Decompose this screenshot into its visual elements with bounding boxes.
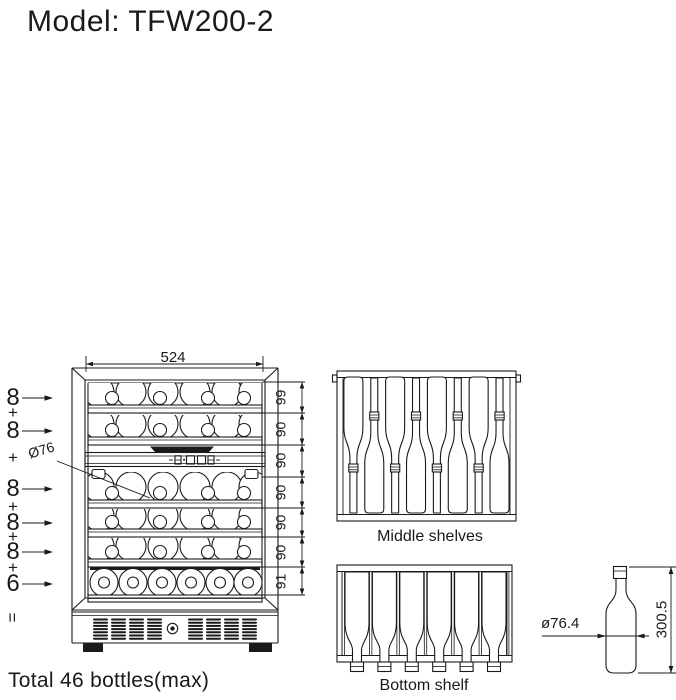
bottle-top-view xyxy=(427,377,446,513)
arrowhead xyxy=(300,589,305,596)
standing-bottle-inner-circle xyxy=(157,577,168,588)
arrowhead xyxy=(256,362,263,367)
bottle-bottom-circle xyxy=(212,377,242,407)
shelf-height-dim: 90 xyxy=(274,413,289,447)
bottle-top-view xyxy=(386,377,405,513)
arrowhead xyxy=(86,362,93,367)
vent-slat xyxy=(93,628,108,630)
bottle-neck-circle xyxy=(202,424,215,437)
bottle-neck-circle xyxy=(154,546,167,559)
cabinet-top-bevel xyxy=(265,368,278,380)
arrowhead xyxy=(669,567,674,574)
vent-slat xyxy=(224,628,239,630)
bottle-neck-circle xyxy=(106,392,119,405)
arrowhead xyxy=(300,567,305,574)
bottle-top-view xyxy=(490,378,509,513)
vent-slat xyxy=(93,631,108,633)
bottle-neck-circle xyxy=(106,546,119,559)
bottle-top-view xyxy=(344,377,363,513)
bottle-neck-circle xyxy=(202,392,215,405)
shelf-height-dim: 91 xyxy=(274,565,289,599)
bottle-bottom-circle xyxy=(212,472,242,502)
bottle-collar xyxy=(411,412,420,420)
vent-slat xyxy=(147,619,162,621)
vent-slat xyxy=(224,625,239,627)
vent-slat xyxy=(206,638,221,640)
standing-bottle-inner-circle xyxy=(99,577,110,588)
door-bottom-bevel xyxy=(265,598,278,610)
vent-slat xyxy=(224,619,239,621)
vent-slat xyxy=(206,619,221,621)
middle-shelf-frame xyxy=(337,371,516,521)
bottle-collar xyxy=(432,464,441,472)
count-arrowhead xyxy=(45,395,54,401)
vent-slat xyxy=(188,625,203,627)
bottom-row-bottles xyxy=(90,569,262,597)
bottle-neck-circle xyxy=(154,424,167,437)
bottle-silhouette xyxy=(400,572,424,662)
bottom-shelf-caption: Bottom shelf xyxy=(350,678,498,694)
shelf-row-bottles xyxy=(84,501,269,531)
count-arrowhead xyxy=(45,520,54,526)
vent-slat xyxy=(188,622,203,624)
bottle-neck-circle xyxy=(238,516,251,529)
fridge-foot xyxy=(83,643,103,652)
width-dimension-label: 524 xyxy=(140,350,206,365)
bottle-collar xyxy=(370,412,379,420)
vent-slat xyxy=(111,619,126,621)
vent-slat xyxy=(93,635,108,637)
shelf-height-dim: 99 xyxy=(274,381,289,415)
bottle-bottom-circle xyxy=(212,531,242,561)
bottle-bottom-circle xyxy=(116,501,146,531)
shelf-row-bottles xyxy=(84,377,269,407)
vent-slat xyxy=(111,638,126,640)
bottle-silhouette xyxy=(372,572,396,662)
bottle-neck-circle xyxy=(154,487,167,500)
bottle-bottom-circle xyxy=(116,531,146,561)
shelf-row-bottles xyxy=(84,531,269,561)
arrowhead xyxy=(300,531,305,538)
bottle-top-view xyxy=(469,377,488,513)
bottle-collar xyxy=(474,464,483,472)
middle-shelves-caption: Middle shelves xyxy=(355,529,505,545)
arrowhead xyxy=(300,407,305,414)
shelf-board xyxy=(88,559,262,567)
standing-bottle-inner-circle xyxy=(128,577,139,588)
vent-slat xyxy=(188,628,203,630)
bottle-count-label: 8 xyxy=(5,419,21,443)
vent-slat xyxy=(206,622,221,624)
arrowhead xyxy=(636,634,645,639)
vent-slat xyxy=(242,625,257,627)
bottle-neck-circle xyxy=(106,424,119,437)
vent-slat xyxy=(111,631,126,633)
shelf-height-dim: 90 xyxy=(274,476,289,510)
middle-shelf-tab xyxy=(333,375,338,382)
vent-slat xyxy=(224,638,239,640)
count-arrowhead xyxy=(45,486,54,492)
count-arrowhead xyxy=(45,428,54,434)
door-bottom-bevel xyxy=(72,598,85,610)
screw-icon xyxy=(171,627,174,630)
vent-slat xyxy=(147,622,162,624)
vent-slat xyxy=(129,625,144,627)
bottle-bottom-circle xyxy=(116,377,146,407)
bottle-neck-circle xyxy=(238,392,251,405)
bottom-shelf-front-rail xyxy=(90,567,260,571)
standing-bottle-inner-circle xyxy=(186,577,197,588)
shelf-board xyxy=(88,437,262,445)
shelf-bracket xyxy=(245,470,258,479)
vent-slat xyxy=(206,635,221,637)
vent-slat xyxy=(242,622,257,624)
vent-slat xyxy=(147,625,162,627)
vent-slat xyxy=(206,625,221,627)
vent-slat xyxy=(224,631,239,633)
vent-slat xyxy=(188,638,203,640)
shelf-board xyxy=(88,529,262,537)
line-art-canvas xyxy=(0,0,676,700)
vent-slat xyxy=(188,631,203,633)
vent-slat xyxy=(242,631,257,633)
bottle-bottom-circle xyxy=(212,501,242,531)
arrowhead xyxy=(300,413,305,420)
bottle-count-label: 6 xyxy=(5,572,21,596)
bottle-neck-circle xyxy=(238,546,251,559)
vent-slat xyxy=(147,638,162,640)
bottle-height-label: 300.5 xyxy=(655,597,670,643)
vent-slat xyxy=(129,628,144,630)
vent-slat xyxy=(147,631,162,633)
plus-sign: + xyxy=(6,449,20,466)
bottle-neck-circle xyxy=(154,516,167,529)
vent-slat xyxy=(242,628,257,630)
bottle-collar xyxy=(391,464,400,472)
bottle-neck-circle xyxy=(106,487,119,500)
vent-slat xyxy=(111,625,126,627)
arrowhead xyxy=(598,634,607,639)
arrowhead xyxy=(300,382,305,389)
vent-slat xyxy=(129,622,144,624)
vent-slat xyxy=(206,631,221,633)
control-button xyxy=(198,456,206,464)
vent-slat xyxy=(93,619,108,621)
door-handle xyxy=(150,447,214,453)
equals-sign: = xyxy=(4,611,21,625)
vent-slat xyxy=(93,625,108,627)
vent-slat xyxy=(242,619,257,621)
bottle-neck-circle xyxy=(238,424,251,437)
control-display-dot xyxy=(183,459,185,461)
vent-slat xyxy=(111,622,126,624)
detail-bottle-outline xyxy=(606,579,636,674)
vent-slat xyxy=(93,638,108,640)
vent-slat xyxy=(111,628,126,630)
vent-slat xyxy=(224,622,239,624)
vent-slat xyxy=(206,628,221,630)
vent-slat xyxy=(93,622,108,624)
bottle-silhouette xyxy=(482,572,506,662)
arrowhead xyxy=(300,439,305,446)
vent-slat xyxy=(242,635,257,637)
vent-slat xyxy=(242,638,257,640)
bottle-neck-circle xyxy=(202,487,215,500)
bottle-silhouette xyxy=(455,572,479,662)
bottle-silhouette xyxy=(427,572,451,662)
shelf-board xyxy=(88,500,262,508)
vent-slat xyxy=(188,635,203,637)
vent-slat xyxy=(129,619,144,621)
vent-slat xyxy=(129,631,144,633)
cabinet-top-bevel xyxy=(72,368,85,380)
arrowhead xyxy=(300,508,305,515)
vent-slat xyxy=(111,635,126,637)
bottle-top-view xyxy=(365,378,384,513)
vent-slat xyxy=(129,638,144,640)
arrowhead xyxy=(300,477,305,484)
page-title: Model: TFW200-2 xyxy=(27,7,274,37)
bottle-top-view xyxy=(407,378,426,513)
bottle-neck-circle xyxy=(106,516,119,529)
spec-sheet-page: Model: TFW200-2 524 99 90 90 90 90 90 91… xyxy=(0,0,676,700)
middle-shelf-tab xyxy=(516,375,521,382)
total-bottles-note: Total 46 bottles(max) xyxy=(8,670,209,691)
bottle-silhouette xyxy=(345,572,369,662)
count-arrowhead xyxy=(45,549,54,555)
arrowhead xyxy=(300,537,305,544)
fridge-foot xyxy=(249,643,272,652)
standing-bottle-inner-circle xyxy=(215,577,226,588)
bottle-neck-circle xyxy=(202,516,215,529)
bottle-neck-circle xyxy=(238,487,251,500)
bottle-diameter-label: ø76.4 xyxy=(541,616,579,631)
shelf-height-dim: 90 xyxy=(274,506,289,540)
vent-slat xyxy=(147,635,162,637)
bottle-neck-circle xyxy=(202,546,215,559)
bottle-collar xyxy=(453,412,462,420)
detail-bottle-cap xyxy=(614,567,627,579)
bottle-collar xyxy=(349,464,358,472)
shelf-height-dim: 90 xyxy=(274,444,289,478)
arrowhead xyxy=(300,471,305,478)
arrowhead xyxy=(669,666,674,673)
bottle-top-view xyxy=(448,378,467,513)
arrowhead xyxy=(300,561,305,568)
control-button xyxy=(187,456,195,464)
shelf-board xyxy=(88,405,262,413)
bottle-neck-circle xyxy=(154,392,167,405)
bottle-bottom-circle xyxy=(116,472,146,502)
arrowhead xyxy=(300,502,305,509)
bottle-collar xyxy=(495,412,504,420)
vent-slat xyxy=(224,635,239,637)
vent-slat xyxy=(147,628,162,630)
count-arrowhead xyxy=(45,581,54,587)
shelf-row-bottles xyxy=(84,472,269,502)
arrowhead xyxy=(300,445,305,452)
standing-bottle-inner-circle xyxy=(243,577,254,588)
vent-slat xyxy=(129,635,144,637)
vent-slat xyxy=(188,619,203,621)
